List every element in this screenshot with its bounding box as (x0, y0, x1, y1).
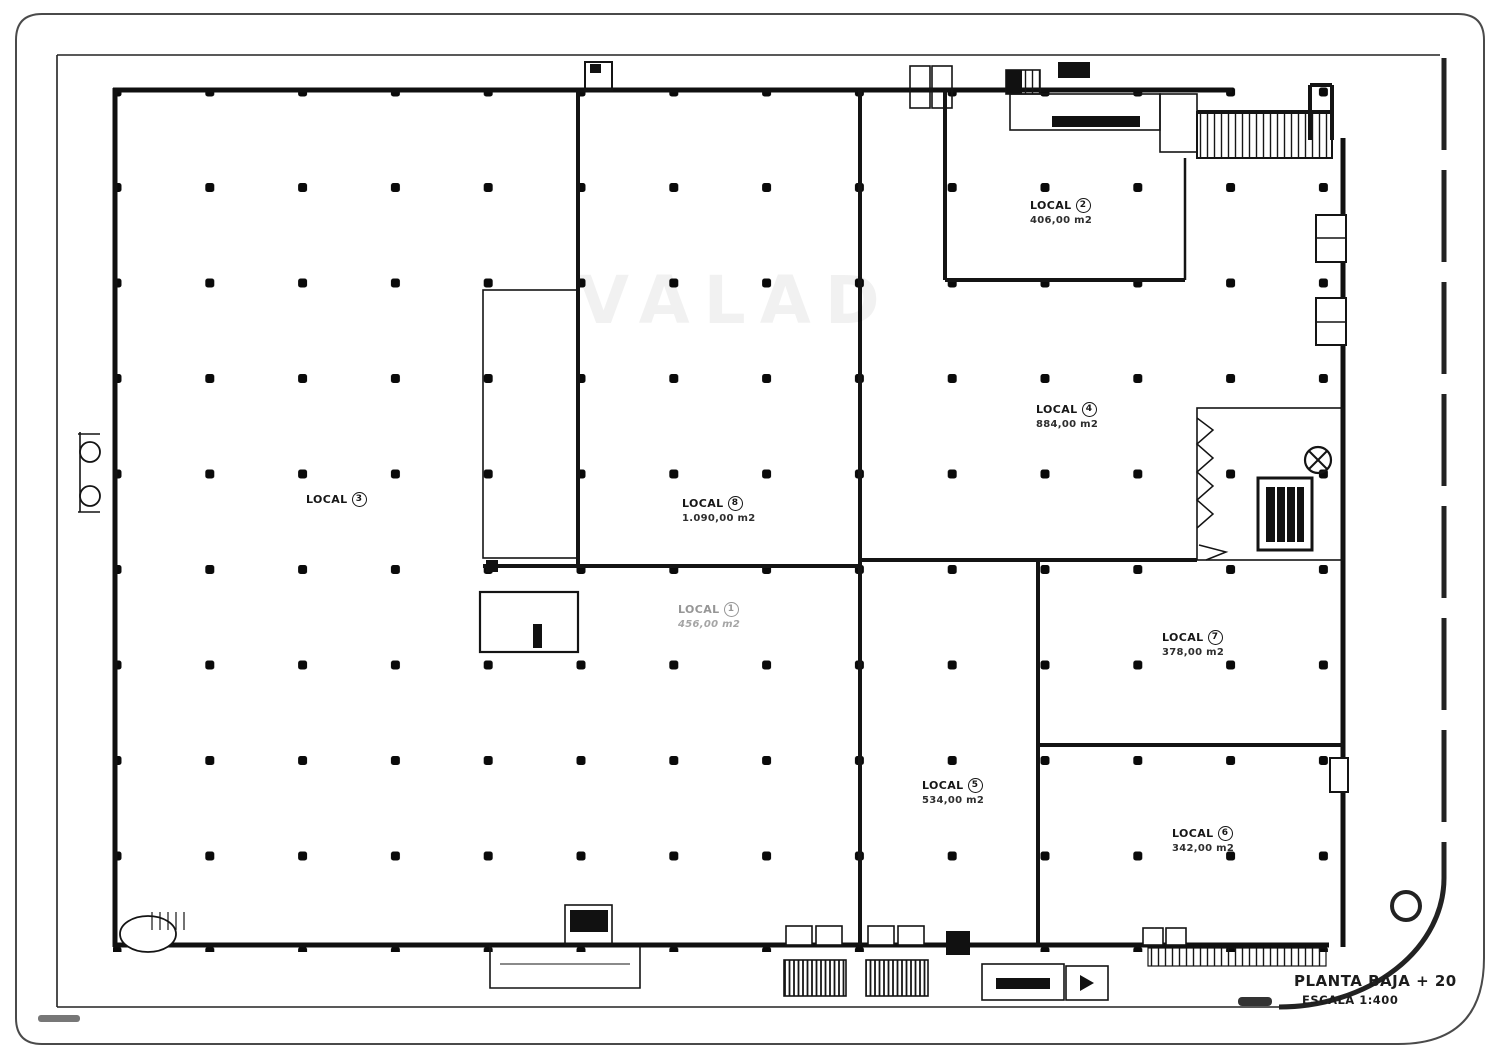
local-area: 534,00 m2 (922, 794, 984, 807)
local-number-badge: 8 (728, 496, 743, 511)
floor-plan-page: VALAD LOCAL3 LOCAL8 1.090,00 m2 LOCAL1 4… (0, 0, 1500, 1058)
local-number-badge: 3 (352, 492, 367, 507)
local-6-label: LOCAL6 342,00 m2 (1172, 826, 1234, 855)
local-area: 342,00 m2 (1172, 842, 1234, 855)
elevator-icon (1258, 478, 1312, 550)
local-number-badge: 6 (1218, 826, 1233, 841)
watermark-text: VALAD (578, 262, 894, 339)
title-block: PLANTA BAJA + 20 ESCALA 1:400 (1294, 972, 1457, 1007)
local-area: 1.090,00 m2 (682, 512, 756, 525)
local-number-badge: 2 (1076, 198, 1091, 213)
local-number-badge: 7 (1208, 630, 1223, 645)
local-3-label: LOCAL3 (306, 492, 367, 507)
local-2-label: LOCAL2 406,00 m2 (1030, 198, 1092, 227)
plan-title: PLANTA BAJA + 20 (1294, 972, 1457, 990)
local-area: 456,00 m2 (678, 618, 740, 631)
local-area: 884,00 m2 (1036, 418, 1098, 431)
local-number-badge: 5 (968, 778, 983, 793)
plan-scale: ESCALA 1:400 (1302, 993, 1457, 1007)
manhole-circle (1392, 892, 1420, 920)
local-7-label: LOCAL7 378,00 m2 (1162, 630, 1224, 659)
local-1-label: LOCAL1 456,00 m2 (678, 602, 740, 631)
local-8-label: LOCAL8 1.090,00 m2 (682, 496, 756, 525)
local-area: 406,00 m2 (1030, 214, 1092, 227)
local-4-label: LOCAL4 884,00 m2 (1036, 402, 1098, 431)
local-number-badge: 1 (724, 602, 739, 617)
local-number-badge: 4 (1082, 402, 1097, 417)
local-area: 378,00 m2 (1162, 646, 1224, 659)
local-5-label: LOCAL5 534,00 m2 (922, 778, 984, 807)
floor-plan-drawing (0, 0, 1500, 1058)
